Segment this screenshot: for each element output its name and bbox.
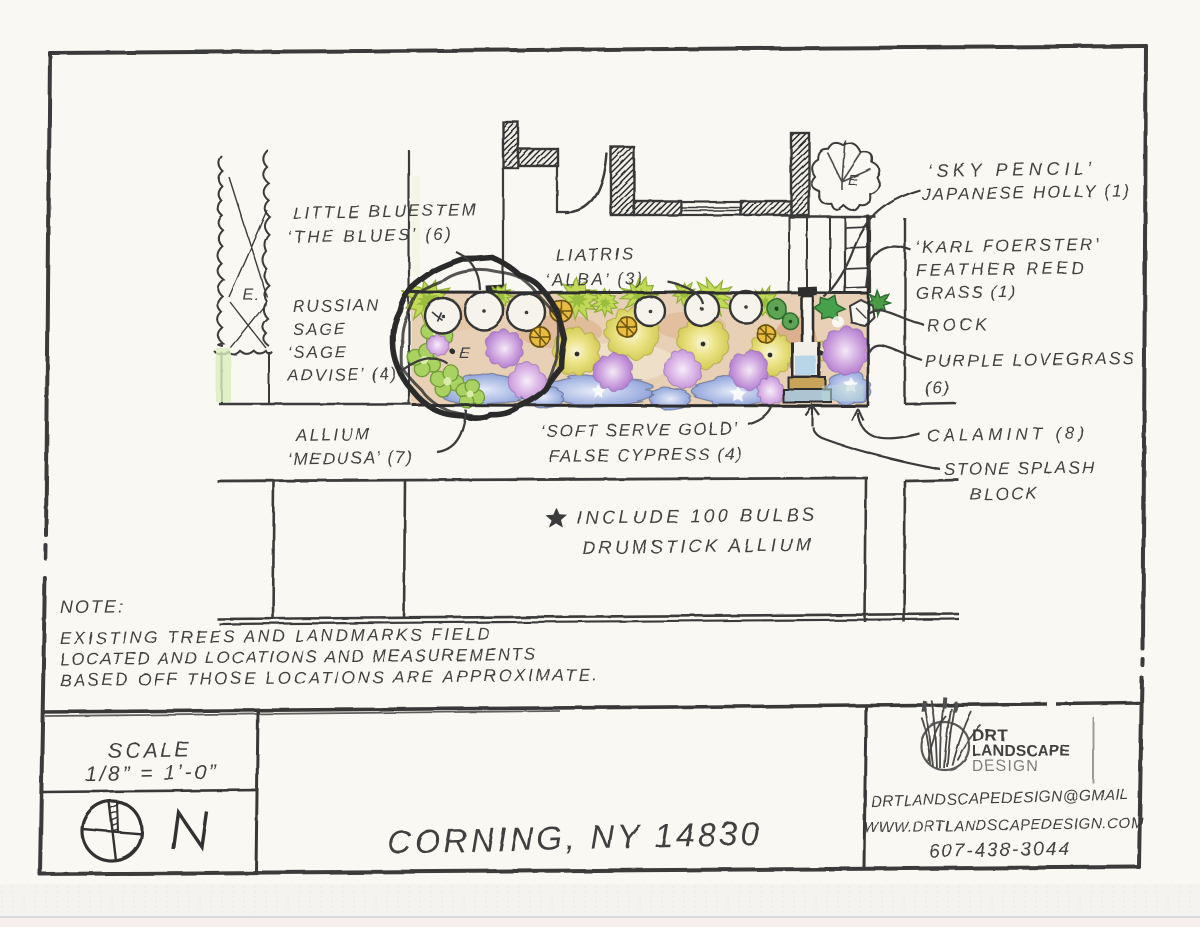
svg-text:ROCK: ROCK xyxy=(927,315,990,335)
svg-text:‘SKY PENCIL’: ‘SKY PENCIL’ xyxy=(928,158,1096,181)
svg-text:RUSSIAN: RUSSIAN xyxy=(293,296,381,316)
svg-text:INCLUDE 100 BULBS: INCLUDE 100 BULBS xyxy=(577,504,818,528)
svg-text:‘SAGE: ‘SAGE xyxy=(288,343,348,362)
svg-text:607-438-3044: 607-438-3044 xyxy=(929,839,1072,862)
svg-text:‘THE BLUES’ (6): ‘THE BLUES’ (6) xyxy=(288,225,454,247)
svg-text:(6): (6) xyxy=(925,378,950,397)
svg-text:NOTE:: NOTE: xyxy=(60,596,125,617)
svg-text:1/8” = 1’-0”: 1/8” = 1’-0” xyxy=(85,761,219,786)
svg-text:E: E xyxy=(459,345,471,362)
svg-text:‘MEDUSA’ (7): ‘MEDUSA’ (7) xyxy=(288,448,414,469)
svg-text:‘SOFT SERVE GOLD’: ‘SOFT SERVE GOLD’ xyxy=(541,419,740,441)
svg-text:STONE SPLASH: STONE SPLASH xyxy=(944,458,1096,479)
svg-text:DESIGN: DESIGN xyxy=(972,758,1039,775)
svg-text:DRUMSTICK ALLIUM: DRUMSTICK ALLIUM xyxy=(582,534,815,558)
svg-text:ALLIUM: ALLIUM xyxy=(295,425,372,445)
svg-text:JAPANESE HOLLY (1): JAPANESE HOLLY (1) xyxy=(921,181,1132,204)
svg-text:LITTLE BLUESTEM: LITTLE BLUESTEM xyxy=(293,200,478,223)
svg-text:LIATRIS: LIATRIS xyxy=(556,244,636,265)
svg-text:E.: E. xyxy=(243,287,260,304)
svg-text:PURPLE LOVEGRASS: PURPLE LOVEGRASS xyxy=(925,349,1136,371)
svg-text:FALSE CYPRESS (4): FALSE CYPRESS (4) xyxy=(549,444,744,466)
svg-text:‘ALBA’ (3): ‘ALBA’ (3) xyxy=(546,269,645,290)
svg-text:ADVISE’ (4): ADVISE’ (4) xyxy=(287,365,398,385)
svg-text:E: E xyxy=(848,172,859,189)
svg-text:FEATHER REED: FEATHER REED xyxy=(916,258,1087,280)
svg-text:CALAMINT (8): CALAMINT (8) xyxy=(927,424,1089,445)
svg-text:SCALE: SCALE xyxy=(108,738,192,762)
svg-text:SAGE: SAGE xyxy=(293,320,347,339)
svg-text:BLOCK: BLOCK xyxy=(970,484,1040,504)
svg-text:‘KARL FOERSTER’: ‘KARL FOERSTER’ xyxy=(916,235,1101,257)
svg-text:GRASS (1): GRASS (1) xyxy=(916,282,1018,303)
